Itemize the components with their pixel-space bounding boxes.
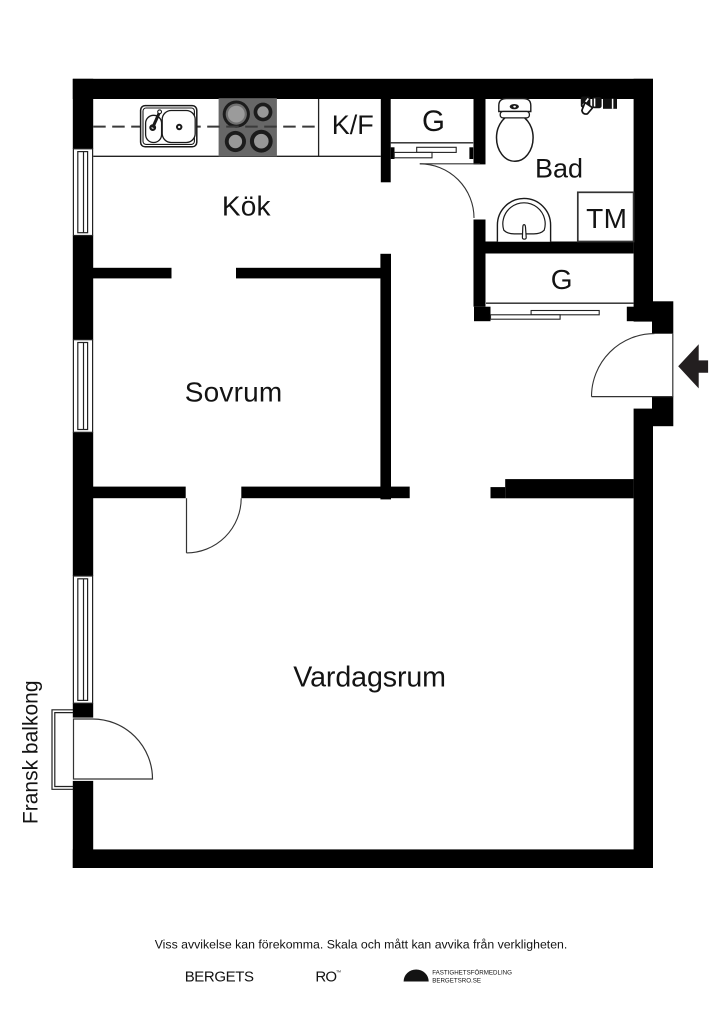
svg-text:Vardagsrum: Vardagsrum	[293, 661, 446, 693]
svg-text:K/F: K/F	[332, 110, 374, 140]
svg-text:BERGETS: BERGETS	[185, 968, 254, 985]
svg-text:Fransk balkong: Fransk balkong	[20, 681, 43, 825]
svg-text:TM: TM	[586, 203, 627, 234]
svg-text:Kök: Kök	[222, 190, 272, 221]
svg-text:FASTIGHETSFÖRMEDLING: FASTIGHETSFÖRMEDLING	[432, 970, 512, 977]
svg-text:Bad: Bad	[535, 154, 583, 184]
svg-text:G: G	[422, 105, 445, 138]
svg-text:G: G	[551, 264, 573, 295]
svg-text:Sovrum: Sovrum	[185, 376, 283, 407]
svg-text:™: ™	[336, 970, 342, 976]
svg-text:BERGETSRO.SE: BERGETSRO.SE	[432, 978, 481, 985]
svg-text:RO: RO	[315, 968, 336, 985]
svg-text:Viss avvikelse kan förekomma.: Viss avvikelse kan förekomma. Skala och …	[155, 938, 568, 952]
